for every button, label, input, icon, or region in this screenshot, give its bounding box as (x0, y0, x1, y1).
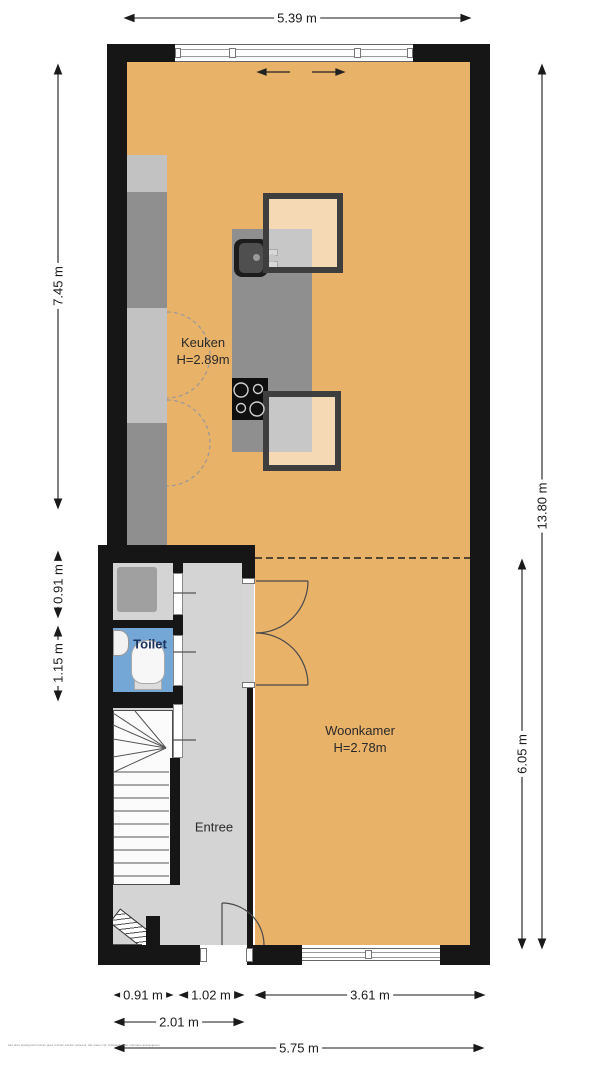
toilet-name: Toilet (133, 637, 167, 652)
dim-bottom-hall: 1.02 m (188, 988, 234, 1003)
dim-left-closet: 0.91 m (51, 561, 66, 607)
double-door-sill (243, 584, 254, 682)
wall-left-lower (98, 545, 113, 965)
window-top-cap-right (407, 48, 413, 58)
window-top-cap-left (175, 48, 181, 58)
wall-bottom-right (440, 945, 490, 965)
dim-right-living: 6.05 m (515, 731, 530, 777)
double-door-frame-top (242, 578, 255, 584)
toilet-door (173, 635, 183, 686)
keuken-name: Keuken (181, 335, 225, 350)
keuken-ceiling-height: H=2.89m (176, 352, 229, 367)
wall-kitchen-bottom (98, 545, 255, 563)
kitchen-counter-cabinet (127, 308, 167, 423)
wall-meter-stub (146, 916, 160, 948)
dim-left-total: 7.45 m (51, 263, 66, 309)
toilet-label: Toilet (133, 637, 167, 654)
front-door-frame-left (200, 948, 207, 962)
wall-left-upper (107, 44, 127, 563)
sink-drain (253, 254, 260, 261)
window-top-mullion-1 (229, 48, 236, 58)
wall-right (470, 44, 490, 965)
wall-entree-woonkamer-top (242, 545, 255, 578)
staircase (113, 710, 173, 885)
keuken-label: Keuken H=2.89m (176, 335, 229, 369)
dim-left-toilet: 1.15 m (51, 640, 66, 686)
wall-bottom-entree (98, 945, 200, 965)
stairs-door (173, 704, 183, 758)
hand-basin-icon (113, 630, 129, 656)
closet-door (173, 573, 183, 615)
kitchen-counter-appliance-top (127, 155, 167, 192)
wall-entree-woonkamer-lower (247, 688, 253, 965)
dining-table-top (263, 193, 343, 273)
entree-label: Entree (195, 820, 233, 837)
disclaimer-text: Aan deze plattegrond kunnen geen rechten… (8, 1044, 248, 1047)
wall-toilet-bottom (98, 692, 183, 708)
window-woonkamer-mullion (365, 950, 372, 959)
window-top (175, 44, 413, 62)
dim-right-total: 13.80 m (535, 480, 550, 533)
dining-table-bottom (263, 391, 341, 471)
double-door-frame-bottom (242, 682, 255, 688)
window-top-mullion-2 (354, 48, 361, 58)
entree-name: Entree (195, 820, 233, 835)
dim-top-width: 5.39 m (274, 11, 320, 26)
dim-bottom-living: 3.61 m (347, 988, 393, 1003)
woonkamer-ceiling-height: H=2.78m (333, 740, 386, 755)
wall-stair-stringer (170, 758, 180, 885)
woonkamer-name: Woonkamer (325, 723, 395, 738)
dim-bottom-total: 5.75 m (276, 1041, 322, 1056)
front-door-frame-right (246, 948, 253, 962)
wall-hall-stub-top (173, 563, 183, 573)
closet-fixture (117, 567, 157, 612)
woonkamer-label: Woonkamer H=2.78m (325, 723, 395, 757)
dim-bottom-combined: 2.01 m (156, 1015, 202, 1030)
wall-hall-mid-2 (173, 686, 183, 704)
dim-bottom-rooms: 0.91 m (120, 988, 166, 1003)
wall-hall-mid-1 (173, 615, 183, 635)
wall-bottom-mid (253, 945, 302, 965)
floor-plan: Keuken H=2.89m Woonkamer H=2.78m Entree … (0, 0, 600, 1067)
